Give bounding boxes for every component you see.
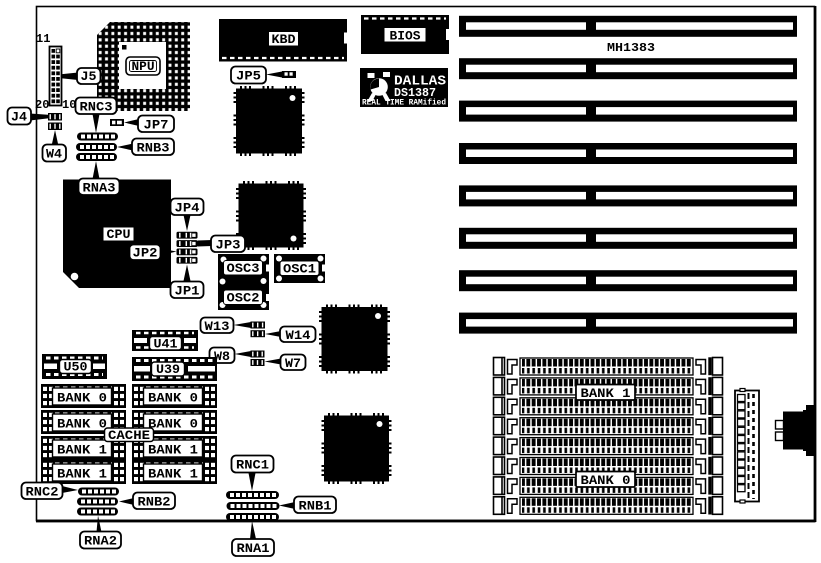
svg-text:BANK 0: BANK 0 xyxy=(57,417,107,432)
svg-text:J5: J5 xyxy=(81,69,97,84)
svg-text:BANK 0: BANK 0 xyxy=(148,417,198,432)
svg-text:20: 20 xyxy=(35,98,49,112)
svg-text:W4: W4 xyxy=(46,147,62,162)
svg-text:JP1: JP1 xyxy=(175,284,200,299)
svg-text:W13: W13 xyxy=(205,319,230,334)
svg-text:BANK 1: BANK 1 xyxy=(148,443,198,458)
svg-text:RNA3: RNA3 xyxy=(83,181,116,196)
svg-text:J4: J4 xyxy=(11,110,27,125)
svg-text:BANK 1: BANK 1 xyxy=(581,386,631,401)
svg-text:REAL TIME RAMified: REAL TIME RAMified xyxy=(362,98,446,108)
svg-text:OSC3: OSC3 xyxy=(227,261,260,276)
svg-text:BANK 1: BANK 1 xyxy=(57,443,107,458)
svg-text:BIOS: BIOS xyxy=(390,29,421,44)
svg-text:BANK 0: BANK 0 xyxy=(57,391,107,406)
svg-text:RNC3: RNC3 xyxy=(80,100,113,115)
svg-text:RNA1: RNA1 xyxy=(237,541,270,556)
svg-text:NPU: NPU xyxy=(132,59,155,74)
svg-text:10: 10 xyxy=(62,98,76,112)
svg-text:U41: U41 xyxy=(154,337,178,352)
svg-text:JP5: JP5 xyxy=(236,69,261,84)
svg-text:W7: W7 xyxy=(285,356,301,371)
svg-text:BANK 0: BANK 0 xyxy=(581,473,631,488)
svg-text:CPU: CPU xyxy=(107,227,131,242)
svg-text:MH1383: MH1383 xyxy=(607,41,655,55)
svg-text:W14: W14 xyxy=(286,328,311,343)
svg-text:OSC1: OSC1 xyxy=(283,262,316,277)
svg-text:BANK 0: BANK 0 xyxy=(148,391,198,406)
svg-text:BANK 1: BANK 1 xyxy=(148,467,198,482)
svg-text:RNB3: RNB3 xyxy=(137,141,170,156)
svg-text:RNC1: RNC1 xyxy=(236,458,269,473)
svg-text:JP2: JP2 xyxy=(133,246,158,261)
svg-text:BANK 1: BANK 1 xyxy=(57,467,107,482)
svg-text:RNC2: RNC2 xyxy=(26,485,59,500)
svg-text:KBD: KBD xyxy=(272,32,296,47)
svg-text:JP7: JP7 xyxy=(144,118,169,133)
svg-text:JP4: JP4 xyxy=(175,201,200,216)
svg-text:U50: U50 xyxy=(64,360,88,375)
svg-text:RNB1: RNB1 xyxy=(299,499,332,514)
svg-text:RNA2: RNA2 xyxy=(84,534,117,549)
svg-text:11: 11 xyxy=(36,32,50,46)
svg-text:OSC2: OSC2 xyxy=(227,291,260,306)
svg-text:JP3: JP3 xyxy=(216,238,241,253)
svg-text:U39: U39 xyxy=(156,362,180,377)
svg-text:RNB2: RNB2 xyxy=(138,495,171,510)
svg-text:CACHE: CACHE xyxy=(108,428,150,443)
